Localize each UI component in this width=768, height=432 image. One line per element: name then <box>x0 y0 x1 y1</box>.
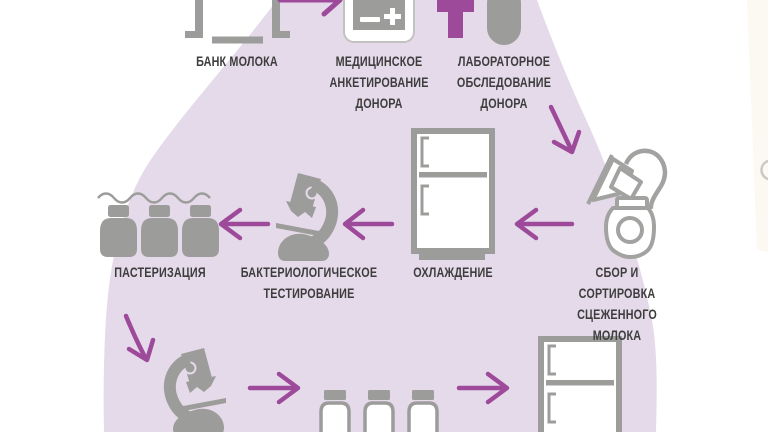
step-label-milk-collection: СБОР И СОРТИРОВКА СЦЕЖЕННОГО МОЛОКА <box>557 262 678 346</box>
step-label-pasteurization: ПАСТЕРИЗАЦИЯ <box>114 262 206 283</box>
step-label-cooling: ОХЛАЖДЕНИЕ <box>413 262 493 283</box>
milk-bank-building-icon <box>185 0 290 44</box>
milk-bottles-icon <box>321 390 437 432</box>
medical-card-icon <box>344 0 414 42</box>
step-label-medical-survey: МЕДИЦИНСКОЕ АНКЕТИРОВАНИЕ ДОНОРА <box>329 51 428 114</box>
test-tube-icon <box>487 0 521 45</box>
edge-highlight-strip <box>747 0 768 252</box>
step-label-milk-bank: БАНК МОЛОКА <box>196 51 278 72</box>
refrigerator-base <box>419 251 485 260</box>
refrigerator-icon <box>414 131 492 251</box>
refrigerator-icon <box>541 339 619 432</box>
step-label-bacteriological-testing: БАКТЕРИОЛОГИЧЕСКОЕ ТЕСТИРОВАНИЕ <box>241 262 377 304</box>
milk-bank-infographic: БАНК МОЛОКА МЕДИЦИНСКОЕ АНКЕТИРОВАНИЕ ДО… <box>0 0 768 432</box>
step-label-lab-screening: ЛАБОРАТОРНОЕ ОБСЛЕДОВАНИЕ ДОНОРА <box>457 51 551 114</box>
